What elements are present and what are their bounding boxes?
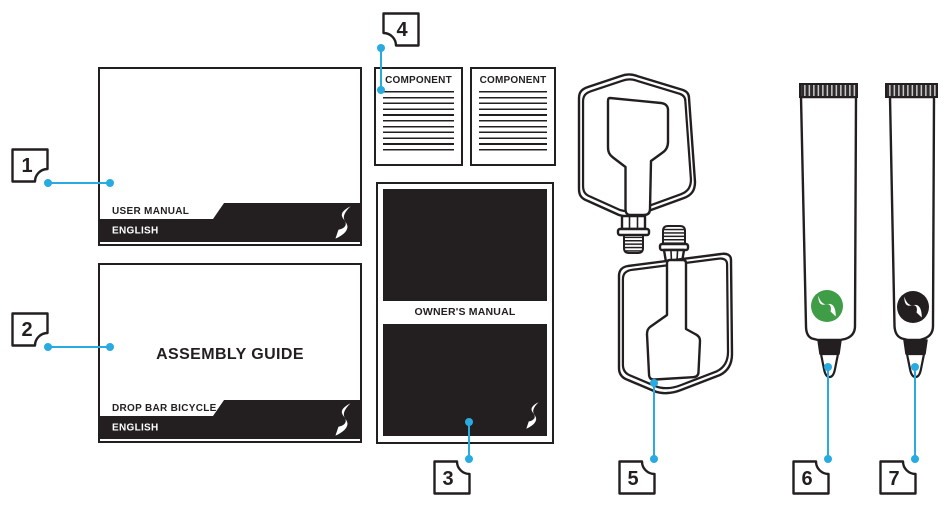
user-manual-booklet: USER MANUAL ENGLISH bbox=[98, 67, 362, 246]
callout-dot bbox=[465, 418, 473, 426]
component-text-lines bbox=[479, 91, 547, 153]
green-s-logo-badge bbox=[811, 290, 843, 322]
owners-manual-title: OWNER'S MANUAL bbox=[383, 301, 547, 324]
callout-label-6: 6 bbox=[791, 459, 831, 496]
svg-text:7: 7 bbox=[888, 468, 899, 490]
callout-line-4 bbox=[380, 47, 383, 90]
callout-label-4: 4 bbox=[381, 11, 421, 48]
language-band: ENGLISH bbox=[100, 219, 360, 242]
grease-tube-green bbox=[797, 80, 861, 380]
assembly-guide-heading: ASSEMBLY GUIDE bbox=[100, 346, 360, 364]
tube-crimp-seal bbox=[886, 84, 937, 97]
user-manual-footer: USER MANUAL ENGLISH bbox=[100, 203, 360, 242]
callout-label-1: 1 bbox=[10, 147, 50, 184]
user-manual-language: ENGLISH bbox=[112, 225, 159, 236]
callout-dot bbox=[911, 363, 919, 371]
grease-tube-black bbox=[882, 80, 944, 380]
callout-label-7: 7 bbox=[878, 459, 918, 496]
callout-dot bbox=[377, 86, 385, 94]
callout-line-5 bbox=[653, 383, 656, 459]
component-card-title: COMPONENT bbox=[472, 75, 554, 86]
specialized-s-icon bbox=[335, 206, 351, 239]
callout-label-5: 5 bbox=[617, 459, 657, 496]
black-s-logo-badge bbox=[897, 291, 929, 323]
owners-manual-booklet: OWNER'S MANUAL bbox=[376, 182, 554, 444]
callout-line-6 bbox=[827, 367, 830, 459]
language-band: ENGLISH bbox=[100, 416, 360, 439]
tube-cap-collar bbox=[818, 340, 841, 354]
owners-manual-cover-top bbox=[383, 189, 547, 301]
tube-crimp-seal bbox=[800, 84, 857, 97]
svg-text:2: 2 bbox=[21, 319, 32, 341]
component-card-1: COMPONENT bbox=[374, 67, 463, 166]
assembly-guide-booklet: ASSEMBLY GUIDE DROP BAR BICYCLE ENGLISH bbox=[98, 263, 362, 443]
svg-text:4: 4 bbox=[396, 19, 408, 41]
component-text-lines bbox=[383, 91, 454, 153]
callout-line-3 bbox=[468, 422, 471, 459]
svg-text:1: 1 bbox=[21, 155, 32, 177]
callout-dot bbox=[106, 343, 114, 351]
svg-text:6: 6 bbox=[801, 468, 812, 490]
callout-line-1 bbox=[48, 182, 110, 185]
svg-text:3: 3 bbox=[442, 468, 453, 490]
assembly-guide-footer: DROP BAR BICYCLE ENGLISH bbox=[100, 400, 360, 439]
callout-label-2: 2 bbox=[10, 311, 50, 348]
callout-label-3: 3 bbox=[432, 459, 472, 496]
assembly-guide-title: DROP BAR BICYCLE bbox=[112, 403, 217, 414]
svg-text:5: 5 bbox=[627, 468, 638, 490]
component-card-2: COMPONENT bbox=[470, 67, 556, 166]
tube-cap-collar bbox=[904, 340, 927, 354]
callout-line-2 bbox=[48, 346, 110, 349]
callout-line-7 bbox=[914, 367, 917, 459]
assembly-guide-language: ENGLISH bbox=[112, 422, 159, 433]
user-manual-title: USER MANUAL bbox=[112, 206, 189, 217]
pedal-bottom bbox=[613, 222, 737, 400]
callout-dot bbox=[106, 179, 114, 187]
specialized-s-icon bbox=[335, 403, 351, 436]
callout-dot bbox=[824, 363, 832, 371]
callout-dot bbox=[650, 379, 658, 387]
packaging-contents-diagram: USER MANUAL ENGLISH ASSEMBLY GUIDE DROP … bbox=[0, 0, 946, 510]
pedal-spindle bbox=[660, 226, 688, 262]
component-card-title: COMPONENT bbox=[376, 75, 461, 86]
specialized-s-icon bbox=[526, 402, 539, 429]
